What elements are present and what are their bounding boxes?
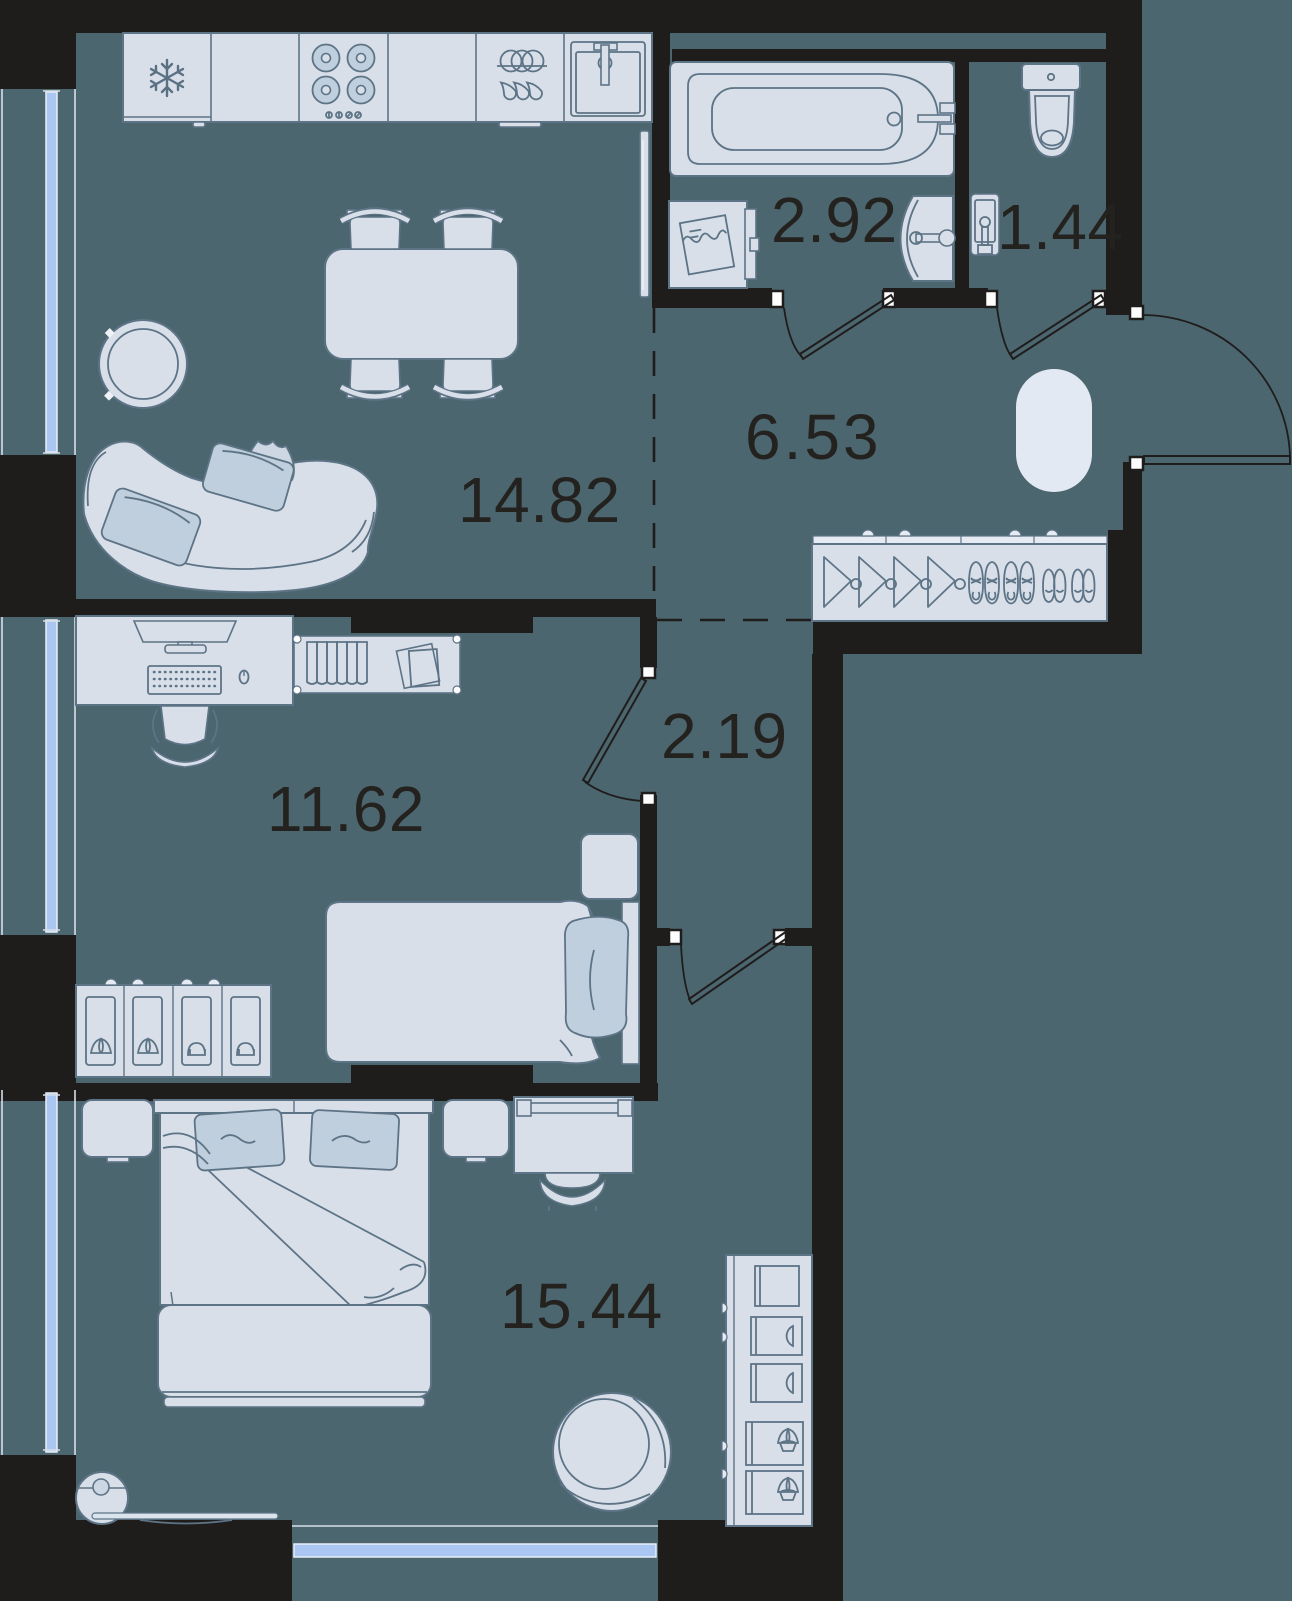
svg-text:6.53: 6.53 — [745, 401, 882, 473]
svg-text:2.19: 2.19 — [661, 700, 788, 772]
svg-text:11.62: 11.62 — [267, 773, 425, 845]
svg-text:1.44: 1.44 — [997, 191, 1124, 263]
svg-text:14.82: 14.82 — [458, 464, 621, 536]
svg-text:2.92: 2.92 — [771, 184, 898, 256]
svg-text:15.44: 15.44 — [500, 1270, 663, 1342]
